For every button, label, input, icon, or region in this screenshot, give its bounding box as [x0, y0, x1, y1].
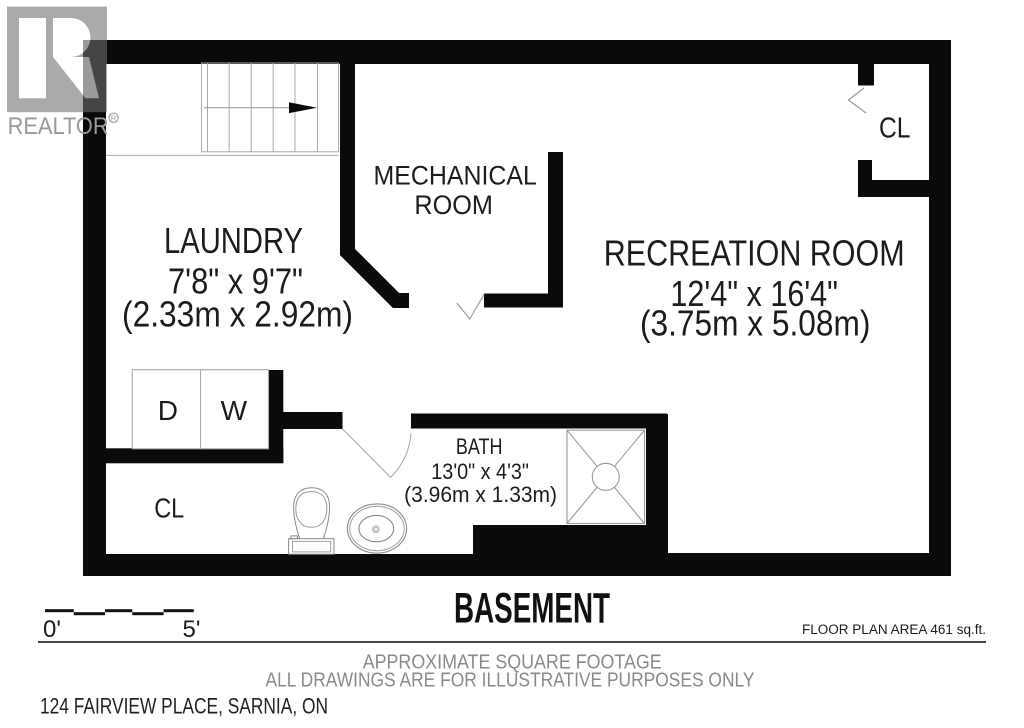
svg-text:CL: CL — [154, 492, 184, 523]
svg-text:(3.75m x 5.08m): (3.75m x 5.08m) — [640, 303, 870, 344]
svg-text:(2.33m x 2.92m): (2.33m x 2.92m) — [122, 294, 353, 335]
svg-text:RECREATION ROOM: RECREATION ROOM — [604, 232, 905, 273]
svg-text:ROOM: ROOM — [414, 190, 493, 220]
svg-text:FLOOR PLAN AREA 461 sq.ft.: FLOOR PLAN AREA 461 sq.ft. — [802, 622, 986, 637]
svg-text:R: R — [111, 114, 117, 123]
svg-text:124 FAIRVIEW PLACE, SARNIA, ON: 124 FAIRVIEW PLACE, SARNIA, ON — [40, 694, 328, 719]
svg-text:ALL DRAWINGS ARE FOR ILLUSTRAT: ALL DRAWINGS ARE FOR ILLUSTRATIVE PURPOS… — [266, 670, 755, 692]
svg-text:W: W — [221, 395, 248, 426]
svg-text:MECHANICAL: MECHANICAL — [374, 161, 537, 191]
svg-text:5': 5' — [183, 616, 201, 643]
svg-text:REALTOR: REALTOR — [8, 113, 109, 140]
svg-text:0': 0' — [43, 616, 61, 643]
svg-text:BASEMENT: BASEMENT — [454, 586, 610, 633]
svg-text:CL: CL — [879, 113, 911, 145]
svg-text:BATH: BATH — [456, 434, 503, 459]
svg-text:13'0" x 4'3": 13'0" x 4'3" — [431, 459, 529, 484]
svg-text:D: D — [158, 395, 178, 426]
svg-text:(3.96m x 1.33m): (3.96m x 1.33m) — [404, 482, 557, 507]
svg-text:LAUNDRY: LAUNDRY — [164, 220, 303, 261]
